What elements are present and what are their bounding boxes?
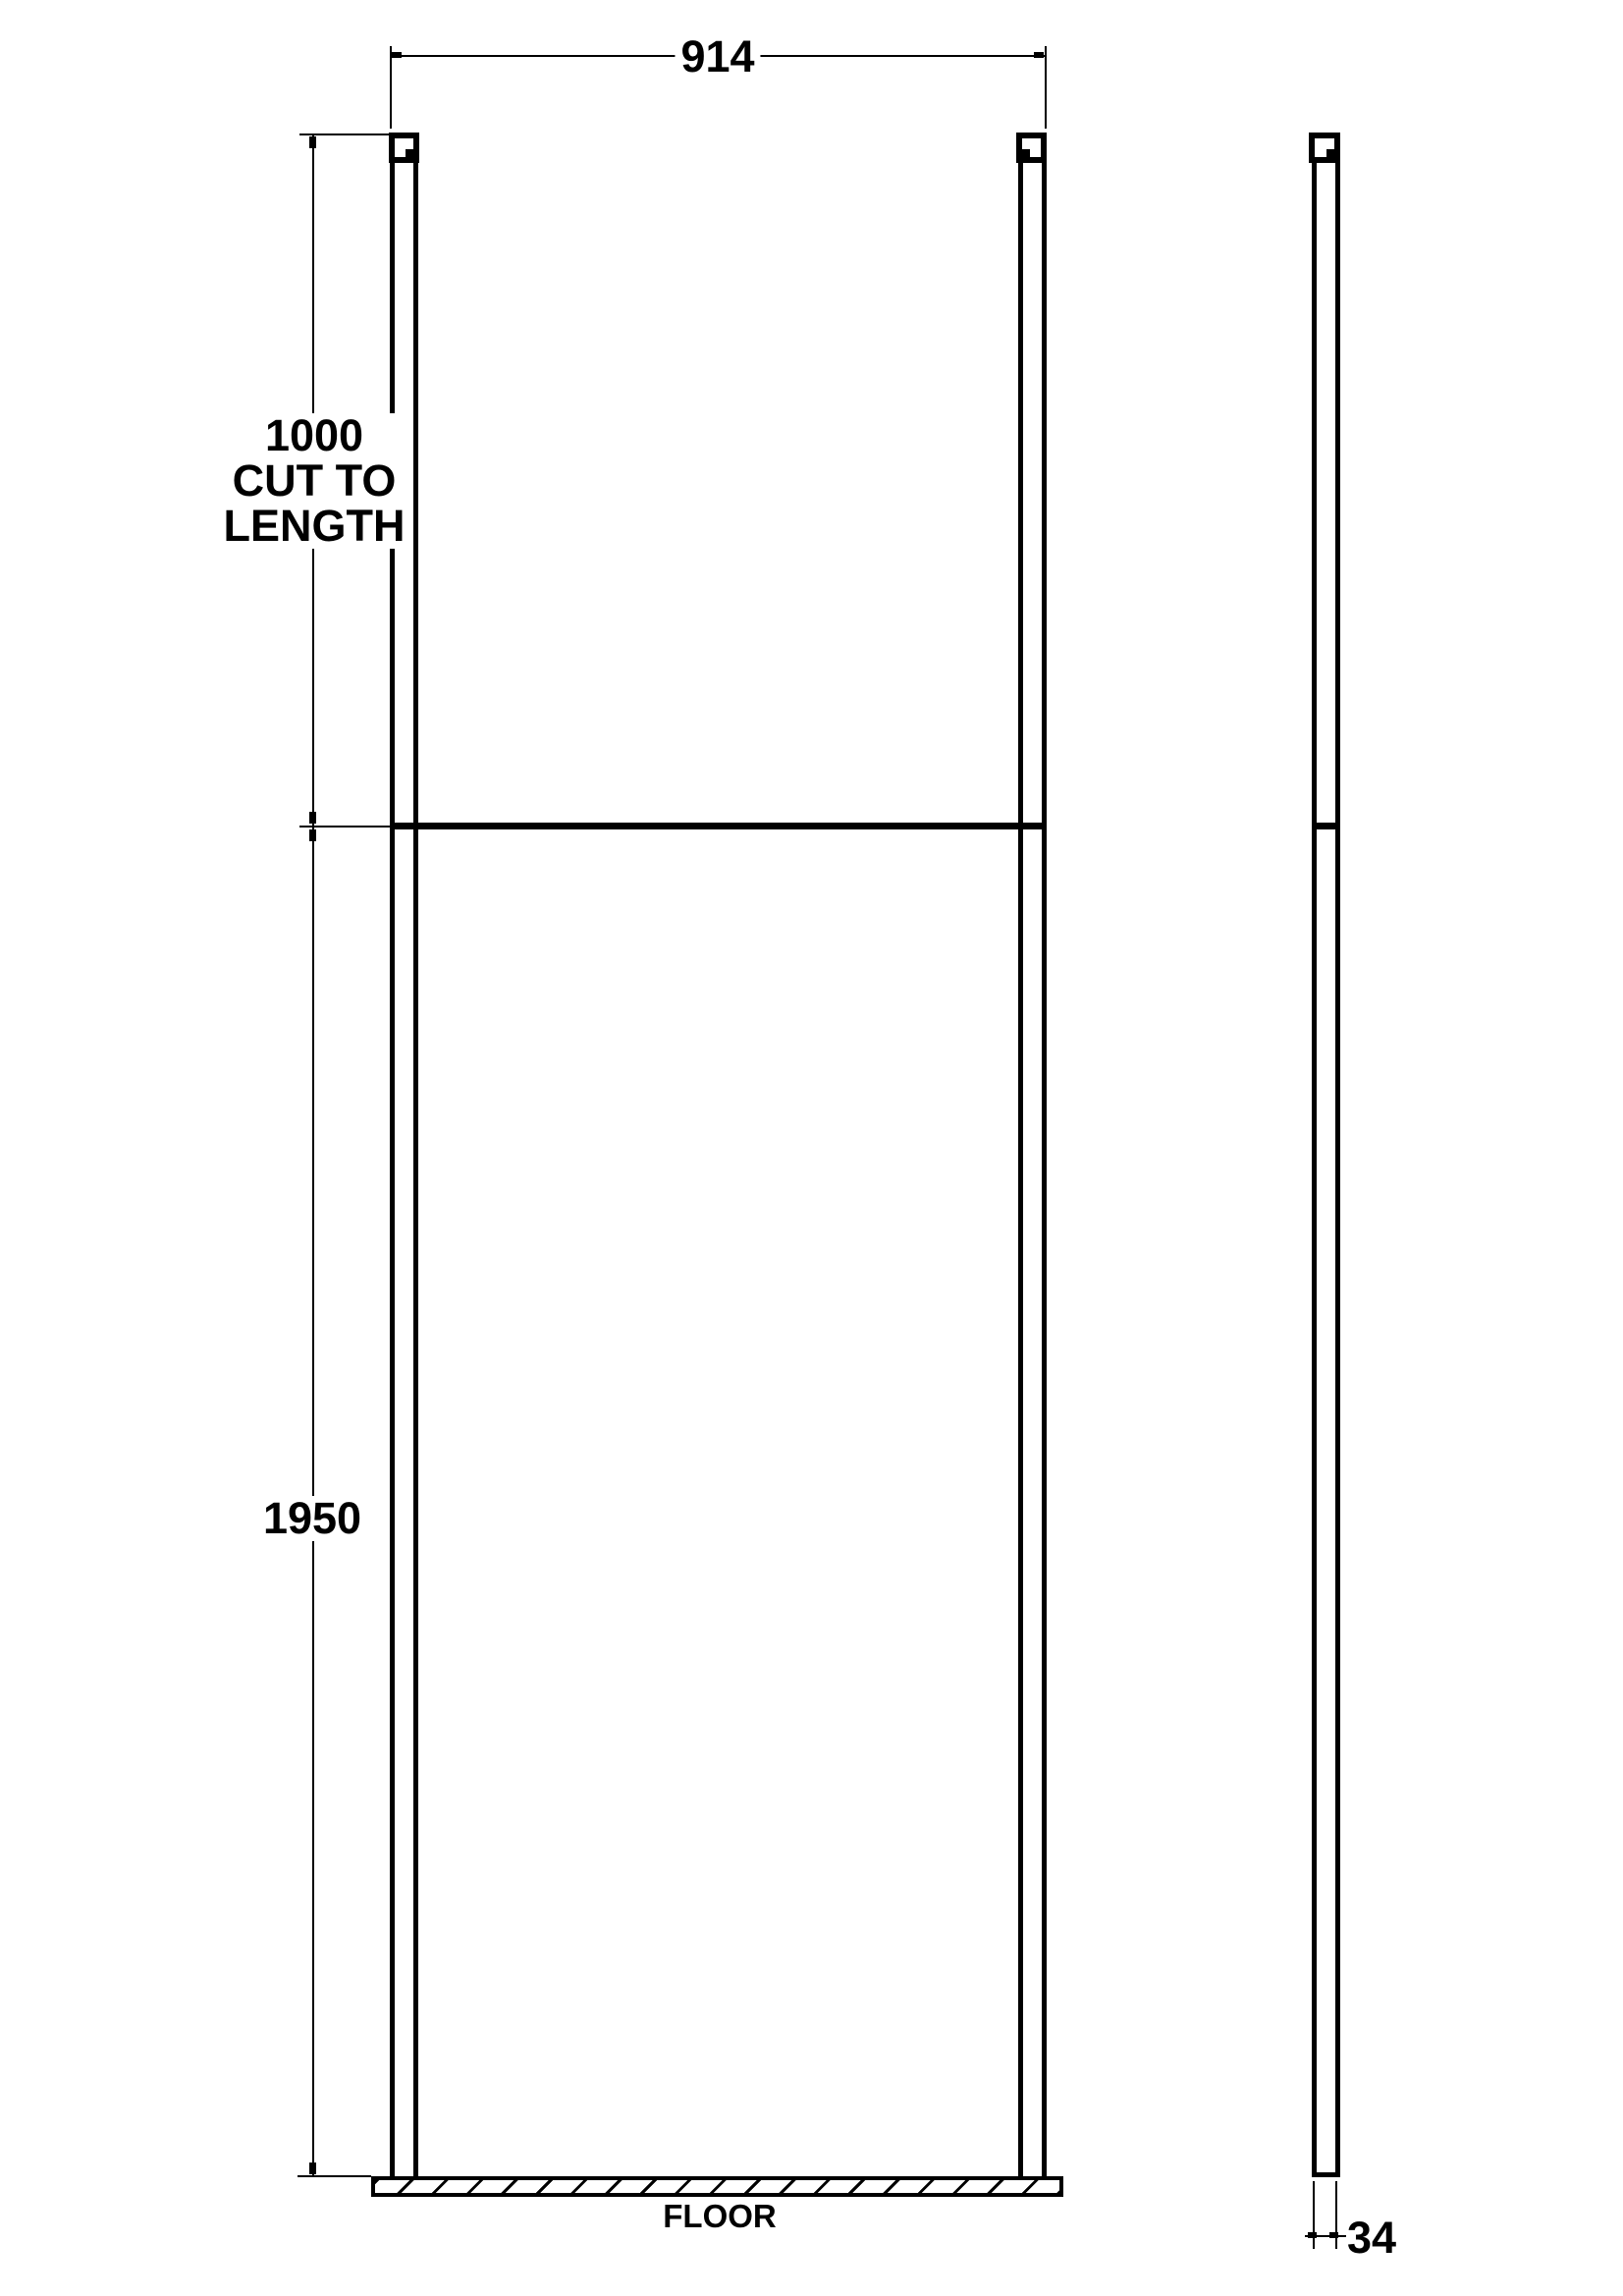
floor-label: FLOOR [663, 2200, 776, 2233]
floor-hatch-strip [371, 2176, 1063, 2197]
width-tick-left [392, 52, 402, 58]
floor-extension-line [298, 2175, 371, 2177]
height-dimension-value: 1950 [257, 1496, 367, 1541]
side-cap-fixing-dot [1326, 149, 1334, 157]
front-right-post [1018, 163, 1047, 2176]
post-top-extension-line [299, 133, 389, 135]
side-glass-top-edge [1312, 823, 1340, 829]
thickness-extension-line-right [1335, 2181, 1337, 2249]
front-right-cap-fixing-dot [1022, 149, 1030, 157]
width-tick-right [1034, 52, 1044, 58]
post-drop-value: 1000 [224, 413, 406, 458]
width-extension-line-right [1045, 46, 1047, 129]
post-drop-dimension-label: 1000 CUT TO LENGTH [218, 413, 411, 549]
thickness-dimension-value: 34 [1347, 2216, 1396, 2261]
post-drop-note-line2: LENGTH [224, 504, 406, 549]
post-drop-tick-bottom [309, 812, 316, 824]
height-tick-top [309, 829, 316, 841]
technical-drawing-sheet: FLOOR 914 1000 CUT TO LENGTH 1950 34 [0, 0, 1623, 2296]
front-left-cap-fixing-dot [406, 149, 413, 157]
side-post [1312, 163, 1340, 2177]
thickness-tick-left [1308, 2232, 1317, 2238]
width-extension-line-left [390, 46, 392, 129]
width-dimension-value: 914 [675, 34, 760, 80]
front-right-ceiling-cap [1016, 133, 1047, 163]
height-tick-bottom [309, 2163, 316, 2174]
glass-top-extension-line [299, 826, 390, 828]
post-drop-note-line1: CUT TO [224, 458, 406, 504]
thickness-extension-line-left [1313, 2181, 1315, 2249]
glass-panel-top-edge [390, 823, 1047, 829]
post-drop-tick-top [309, 136, 316, 148]
side-ceiling-cap [1309, 133, 1340, 163]
thickness-tick-right [1329, 2232, 1338, 2238]
front-left-ceiling-cap [389, 133, 419, 163]
